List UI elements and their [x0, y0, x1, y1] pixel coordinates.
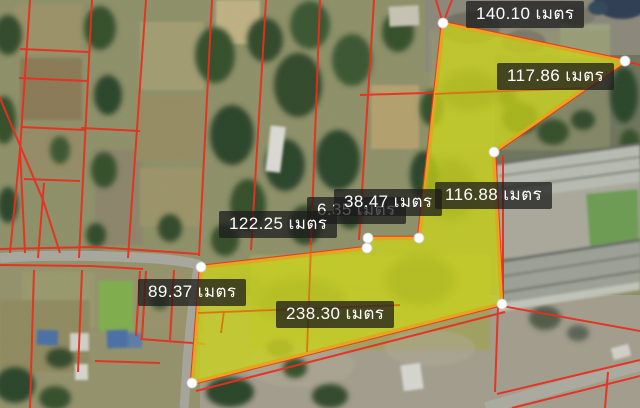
measurement-label-140-10: 140.10 เมตร — [466, 1, 584, 28]
map-canvas[interactable]: 140.10 เมตร 117.86 เมตร 116.88 เมตร 6.35… — [0, 0, 640, 408]
measurement-label-89-37: 89.37 เมตร — [138, 279, 246, 306]
measurement-label-238-30: 238.30 เมตร — [276, 301, 394, 328]
measurement-label-117-86: 117.86 เมตร — [497, 63, 614, 90]
measurement-label-122-25: 122.25 เมตร — [219, 211, 337, 238]
measurement-label-38-47: 38.47 เมตร — [334, 189, 442, 216]
measurement-label-116-88: 116.88 เมตร — [435, 182, 552, 209]
